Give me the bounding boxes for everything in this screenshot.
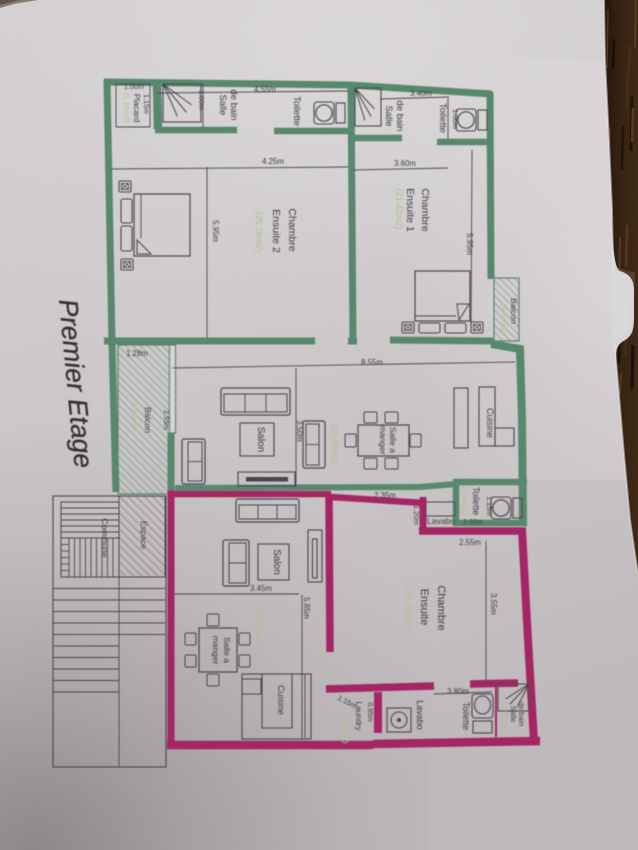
svg-text:Laundry: Laundry [354, 702, 363, 731]
svg-text:3.55m: 3.55m [489, 593, 498, 615]
svg-text:manger: manger [378, 426, 388, 455]
svg-text:de bain: de bain [394, 100, 405, 131]
svg-text:Cuisine: Cuisine [276, 685, 286, 715]
svg-text:Salle a: Salle a [222, 637, 232, 663]
svg-text:Ensuite: Ensuite [418, 589, 430, 626]
svg-text:(1.95m2): (1.95m2) [500, 703, 507, 731]
svg-text:3.45m: 3.45m [250, 584, 272, 593]
svg-text:Commune: Commune [100, 518, 110, 557]
svg-text:2.35m: 2.35m [374, 491, 396, 500]
svg-text:1.15m: 1.15m [485, 496, 492, 516]
svg-text:2.30m: 2.30m [463, 517, 483, 526]
svg-text:Ensuite 2: Ensuite 2 [270, 209, 282, 253]
svg-text:Balcon: Balcon [509, 298, 519, 324]
svg-text:1.20m: 1.20m [412, 505, 421, 525]
svg-text:Toilette: Toilette [291, 96, 302, 126]
svg-text:(29.92m2): (29.92m2) [330, 425, 340, 464]
svg-text:3.40m: 3.40m [410, 89, 432, 98]
svg-text:0.95m: 0.95m [366, 702, 373, 722]
svg-text:(1.15m2): (1.15m2) [122, 93, 131, 124]
svg-text:Lavabo: Lavabo [415, 700, 425, 730]
svg-text:5.95m: 5.95m [211, 220, 220, 242]
svg-text:3.50m: 3.50m [295, 420, 304, 442]
svg-text:Toilette: Toilette [471, 487, 481, 516]
svg-text:Salle: Salle [217, 94, 228, 115]
svg-text:Balcon: Balcon [143, 407, 153, 433]
svg-text:4.55m: 4.55m [254, 85, 276, 94]
svg-text:Salle: Salle [509, 706, 518, 723]
svg-text:(20.18m2): (20.18m2) [254, 608, 264, 647]
svg-text:Salon: Salon [271, 549, 282, 575]
svg-text:Chambre: Chambre [435, 585, 447, 630]
svg-text:(4.98m2): (4.98m2) [130, 401, 139, 432]
svg-text:5.85m: 5.85m [302, 597, 311, 619]
svg-text:Salle: Salle [383, 105, 394, 126]
svg-text:1.15m: 1.15m [142, 94, 151, 114]
svg-text:Toilette: Toilette [437, 103, 448, 133]
svg-text:Lavabo: Lavabo [427, 516, 455, 526]
svg-text:(1.64m2): (1.64m2) [460, 485, 469, 516]
svg-text:1.28m: 1.28m [126, 349, 148, 358]
svg-text:(25.26m2): (25.26m2) [254, 211, 264, 252]
svg-text:(21.42m2): (21.42m2) [394, 188, 404, 229]
svg-text:1.00m: 1.00m [124, 82, 144, 91]
svg-text:5.95m: 5.95m [465, 233, 474, 255]
svg-text:1.00m: 1.00m [451, 109, 460, 129]
svg-text:manger: manger [211, 636, 221, 665]
svg-text:8.55m: 8.55m [361, 358, 383, 367]
svg-text:(23.92m2): (23.92m2) [403, 587, 413, 628]
svg-text:Ensuite 1: Ensuite 1 [404, 188, 416, 232]
svg-text:Salle a: Salle a [388, 427, 398, 453]
svg-text:Chambre: Chambre [286, 208, 298, 251]
svg-text:Toilette: Toilette [461, 702, 471, 731]
svg-text:Cuisine: Cuisine [485, 408, 495, 438]
svg-text:Espace: Espace [139, 521, 149, 550]
svg-text:1.00m: 1.00m [197, 90, 206, 110]
svg-text:de bain: de bain [517, 702, 526, 727]
svg-text:de bain: de bain [228, 89, 239, 120]
svg-text:3.80m: 3.80m [447, 687, 469, 696]
svg-text:Salon: Salon [255, 427, 266, 453]
svg-text:3.60m: 3.60m [394, 159, 416, 168]
svg-text:2.55m: 2.55m [162, 410, 171, 430]
svg-text:Chambre: Chambre [419, 188, 431, 231]
svg-text:Placard: Placard [132, 94, 142, 123]
svg-text:2.55m: 2.55m [459, 538, 481, 547]
svg-text:(1.09m2): (1.09m2) [341, 715, 350, 744]
svg-text:4.25m: 4.25m [262, 157, 284, 166]
svg-text:(4.97m2): (4.97m2) [499, 304, 508, 335]
